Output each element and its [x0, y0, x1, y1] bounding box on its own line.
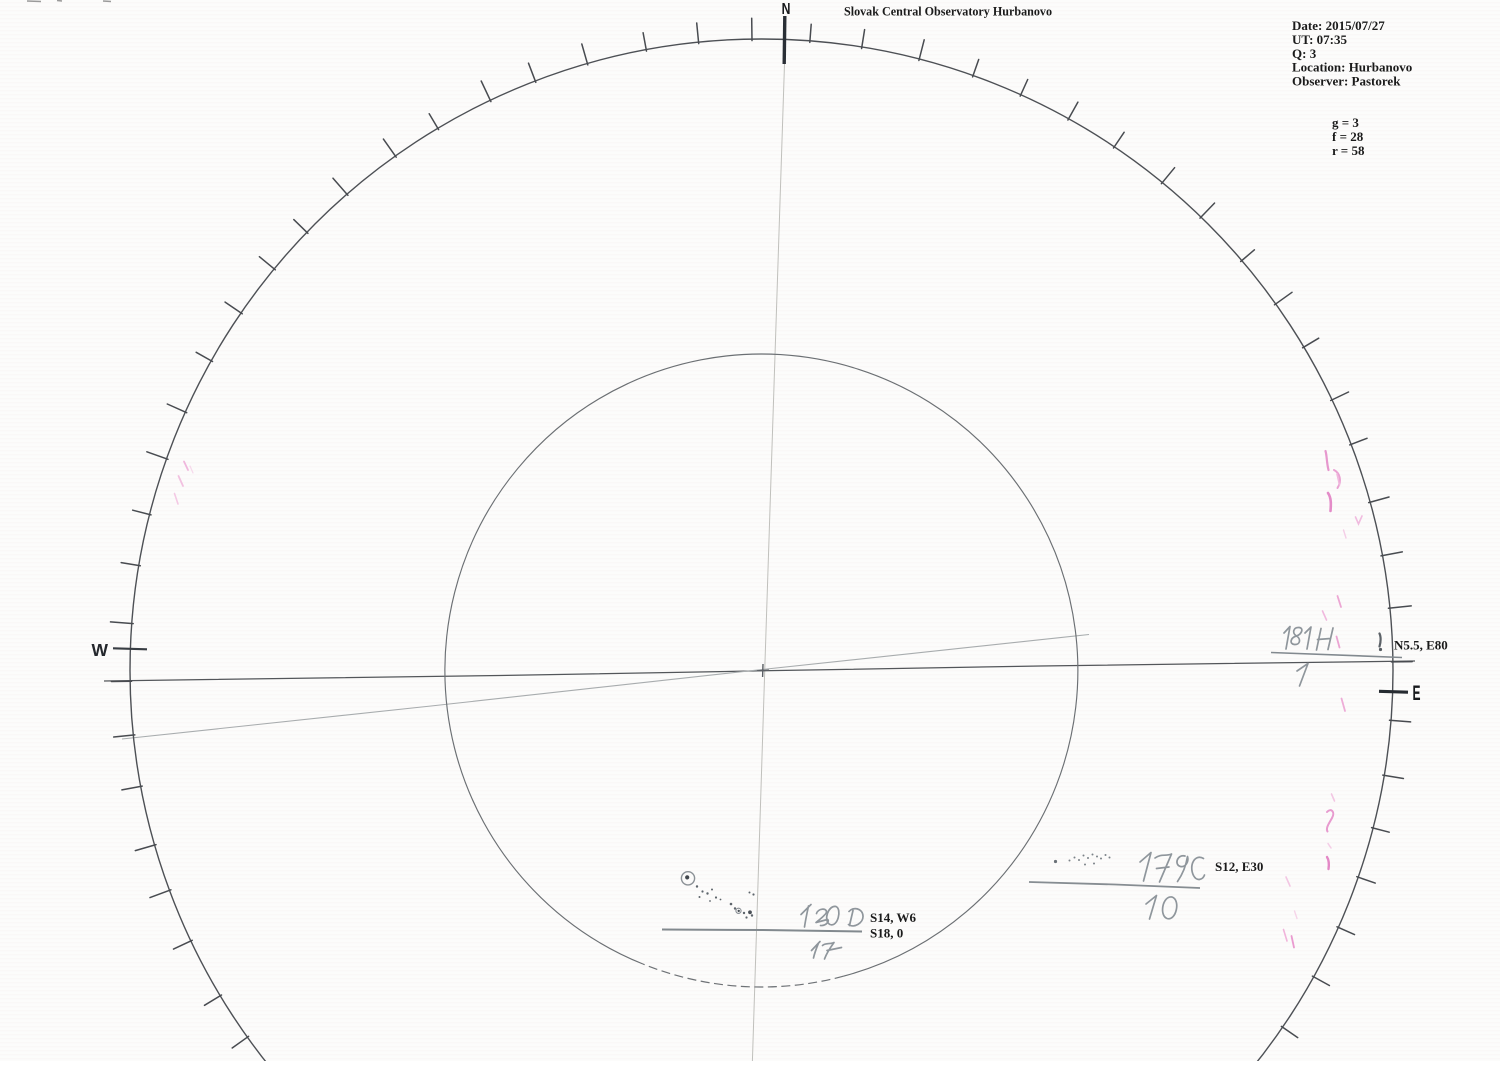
svg-text:S12, E30: S12, E30: [1215, 859, 1263, 874]
svg-text:Observer: Pastorek: Observer: Pastorek: [1292, 74, 1401, 89]
svg-text:Slovak Central Observatory Hur: Slovak Central Observatory Hurbanovo: [844, 4, 1052, 19]
svg-text:g = 3: g = 3: [1332, 115, 1359, 130]
svg-text:S18, 0: S18, 0: [870, 926, 903, 941]
svg-text:Location: Hurbanovo: Location: Hurbanovo: [1292, 60, 1412, 75]
svg-text:E: E: [1413, 682, 1421, 705]
svg-text:N: N: [782, 1, 791, 18]
svg-text:W: W: [92, 640, 109, 660]
svg-text:Q: 3: Q: 3: [1292, 46, 1317, 61]
svg-text:N5.5, E80: N5.5, E80: [1394, 638, 1448, 653]
svg-text:f = 28: f = 28: [1332, 129, 1364, 144]
svg-text:r = 58: r = 58: [1332, 143, 1365, 158]
svg-text:S14, W6: S14, W6: [870, 910, 916, 925]
svg-text:Date: 2015/07/27: Date: 2015/07/27: [1292, 18, 1385, 33]
svg-text:UT: 07:35: UT: 07:35: [1292, 32, 1348, 47]
